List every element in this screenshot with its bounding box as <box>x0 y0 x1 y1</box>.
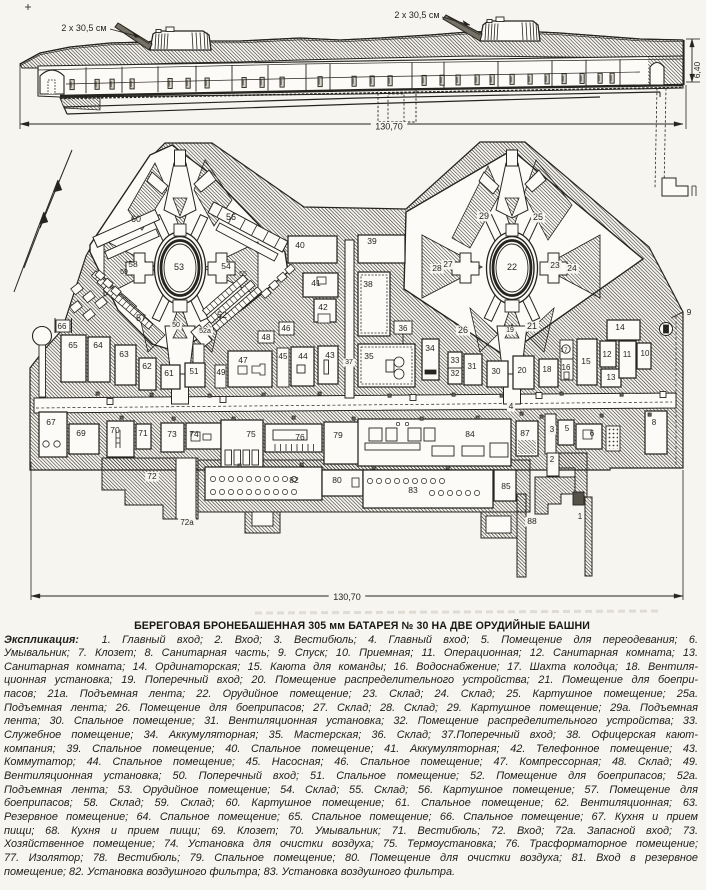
svg-text:3: 3 <box>550 425 555 434</box>
svg-text:50: 50 <box>172 322 180 329</box>
svg-text:8: 8 <box>652 418 657 427</box>
svg-text:72а: 72а <box>180 518 194 527</box>
svg-text:57: 57 <box>136 313 146 323</box>
svg-text:38: 38 <box>363 279 373 289</box>
svg-text:1: 1 <box>578 512 583 521</box>
svg-text:54: 54 <box>221 261 231 271</box>
svg-text:23: 23 <box>550 260 560 270</box>
svg-text:28: 28 <box>432 263 442 273</box>
svg-text:130,70: 130,70 <box>375 122 403 132</box>
svg-text:6,40: 6,40 <box>692 61 702 78</box>
svg-text:30: 30 <box>492 367 501 376</box>
svg-text:51: 51 <box>190 367 199 376</box>
svg-text:11: 11 <box>623 350 632 359</box>
svg-text:19: 19 <box>506 327 514 334</box>
svg-text:41: 41 <box>311 278 321 288</box>
svg-text:71: 71 <box>138 428 148 438</box>
svg-text:56: 56 <box>226 212 236 222</box>
svg-text:88: 88 <box>527 516 537 526</box>
svg-text:36: 36 <box>399 324 408 333</box>
svg-text:16: 16 <box>562 363 571 372</box>
svg-text:79: 79 <box>333 430 343 440</box>
svg-text:60: 60 <box>131 214 141 224</box>
svg-text:12: 12 <box>603 350 612 359</box>
svg-text:44: 44 <box>298 351 308 361</box>
svg-text:52: 52 <box>217 310 227 320</box>
svg-text:75: 75 <box>246 429 256 439</box>
svg-text:33: 33 <box>451 356 460 365</box>
svg-text:47: 47 <box>238 355 248 365</box>
svg-text:24: 24 <box>567 263 577 273</box>
svg-text:64: 64 <box>93 340 103 350</box>
svg-text:32: 32 <box>451 369 460 378</box>
svg-text:14: 14 <box>615 322 625 332</box>
svg-text:20: 20 <box>518 366 527 375</box>
svg-text:52а: 52а <box>199 328 211 335</box>
svg-text:2: 2 <box>550 455 555 464</box>
svg-text:80: 80 <box>332 475 342 485</box>
svg-text:66: 66 <box>58 322 67 331</box>
svg-text:17: 17 <box>560 347 568 354</box>
svg-text:2 х 30,5 см: 2 х 30,5 см <box>61 23 106 33</box>
svg-text:87: 87 <box>520 428 530 438</box>
svg-text:82: 82 <box>289 475 299 485</box>
svg-text:130,70: 130,70 <box>333 592 361 602</box>
svg-text:58: 58 <box>128 259 138 269</box>
svg-text:27: 27 <box>443 259 453 269</box>
svg-text:25: 25 <box>533 212 543 222</box>
svg-text:73: 73 <box>167 429 177 439</box>
svg-text:42: 42 <box>318 302 328 312</box>
svg-text:84: 84 <box>465 429 475 439</box>
svg-text:59: 59 <box>120 269 128 276</box>
svg-text:26: 26 <box>458 325 468 335</box>
svg-text:65: 65 <box>68 340 78 350</box>
svg-text:85: 85 <box>501 481 511 491</box>
svg-text:63: 63 <box>119 349 129 359</box>
svg-text:67: 67 <box>46 417 56 427</box>
svg-text:37: 37 <box>345 359 353 366</box>
svg-text:43: 43 <box>325 350 335 360</box>
svg-text:2 х 30,5 см: 2 х 30,5 см <box>394 10 439 20</box>
svg-text:4: 4 <box>509 401 514 411</box>
svg-text:15: 15 <box>581 356 591 366</box>
svg-text:18: 18 <box>543 365 552 374</box>
svg-text:69: 69 <box>76 428 86 438</box>
svg-text:83: 83 <box>408 485 418 495</box>
svg-text:5: 5 <box>565 424 570 433</box>
svg-text:21: 21 <box>527 321 537 331</box>
svg-text:74: 74 <box>189 429 199 439</box>
svg-text:53: 53 <box>174 262 184 272</box>
svg-text:34: 34 <box>425 343 435 353</box>
svg-text:22: 22 <box>507 262 517 272</box>
svg-text:62: 62 <box>142 361 152 371</box>
svg-text:45: 45 <box>279 352 288 361</box>
svg-text:13: 13 <box>607 373 616 382</box>
svg-text:31: 31 <box>468 362 477 371</box>
svg-text:49: 49 <box>217 368 226 377</box>
svg-text:48: 48 <box>262 333 271 342</box>
svg-text:10: 10 <box>641 349 650 358</box>
svg-text:35: 35 <box>364 351 374 361</box>
svg-text:61: 61 <box>164 368 174 378</box>
svg-text:70: 70 <box>110 425 120 435</box>
svg-text:46: 46 <box>282 324 291 333</box>
svg-text:9: 9 <box>687 307 692 317</box>
svg-text:55: 55 <box>239 271 247 278</box>
svg-text:6: 6 <box>590 429 595 438</box>
svg-text:40: 40 <box>295 240 305 250</box>
svg-text:76: 76 <box>295 432 305 442</box>
svg-text:72: 72 <box>147 471 157 481</box>
svg-text:29: 29 <box>479 211 489 221</box>
svg-text:39: 39 <box>367 236 377 246</box>
